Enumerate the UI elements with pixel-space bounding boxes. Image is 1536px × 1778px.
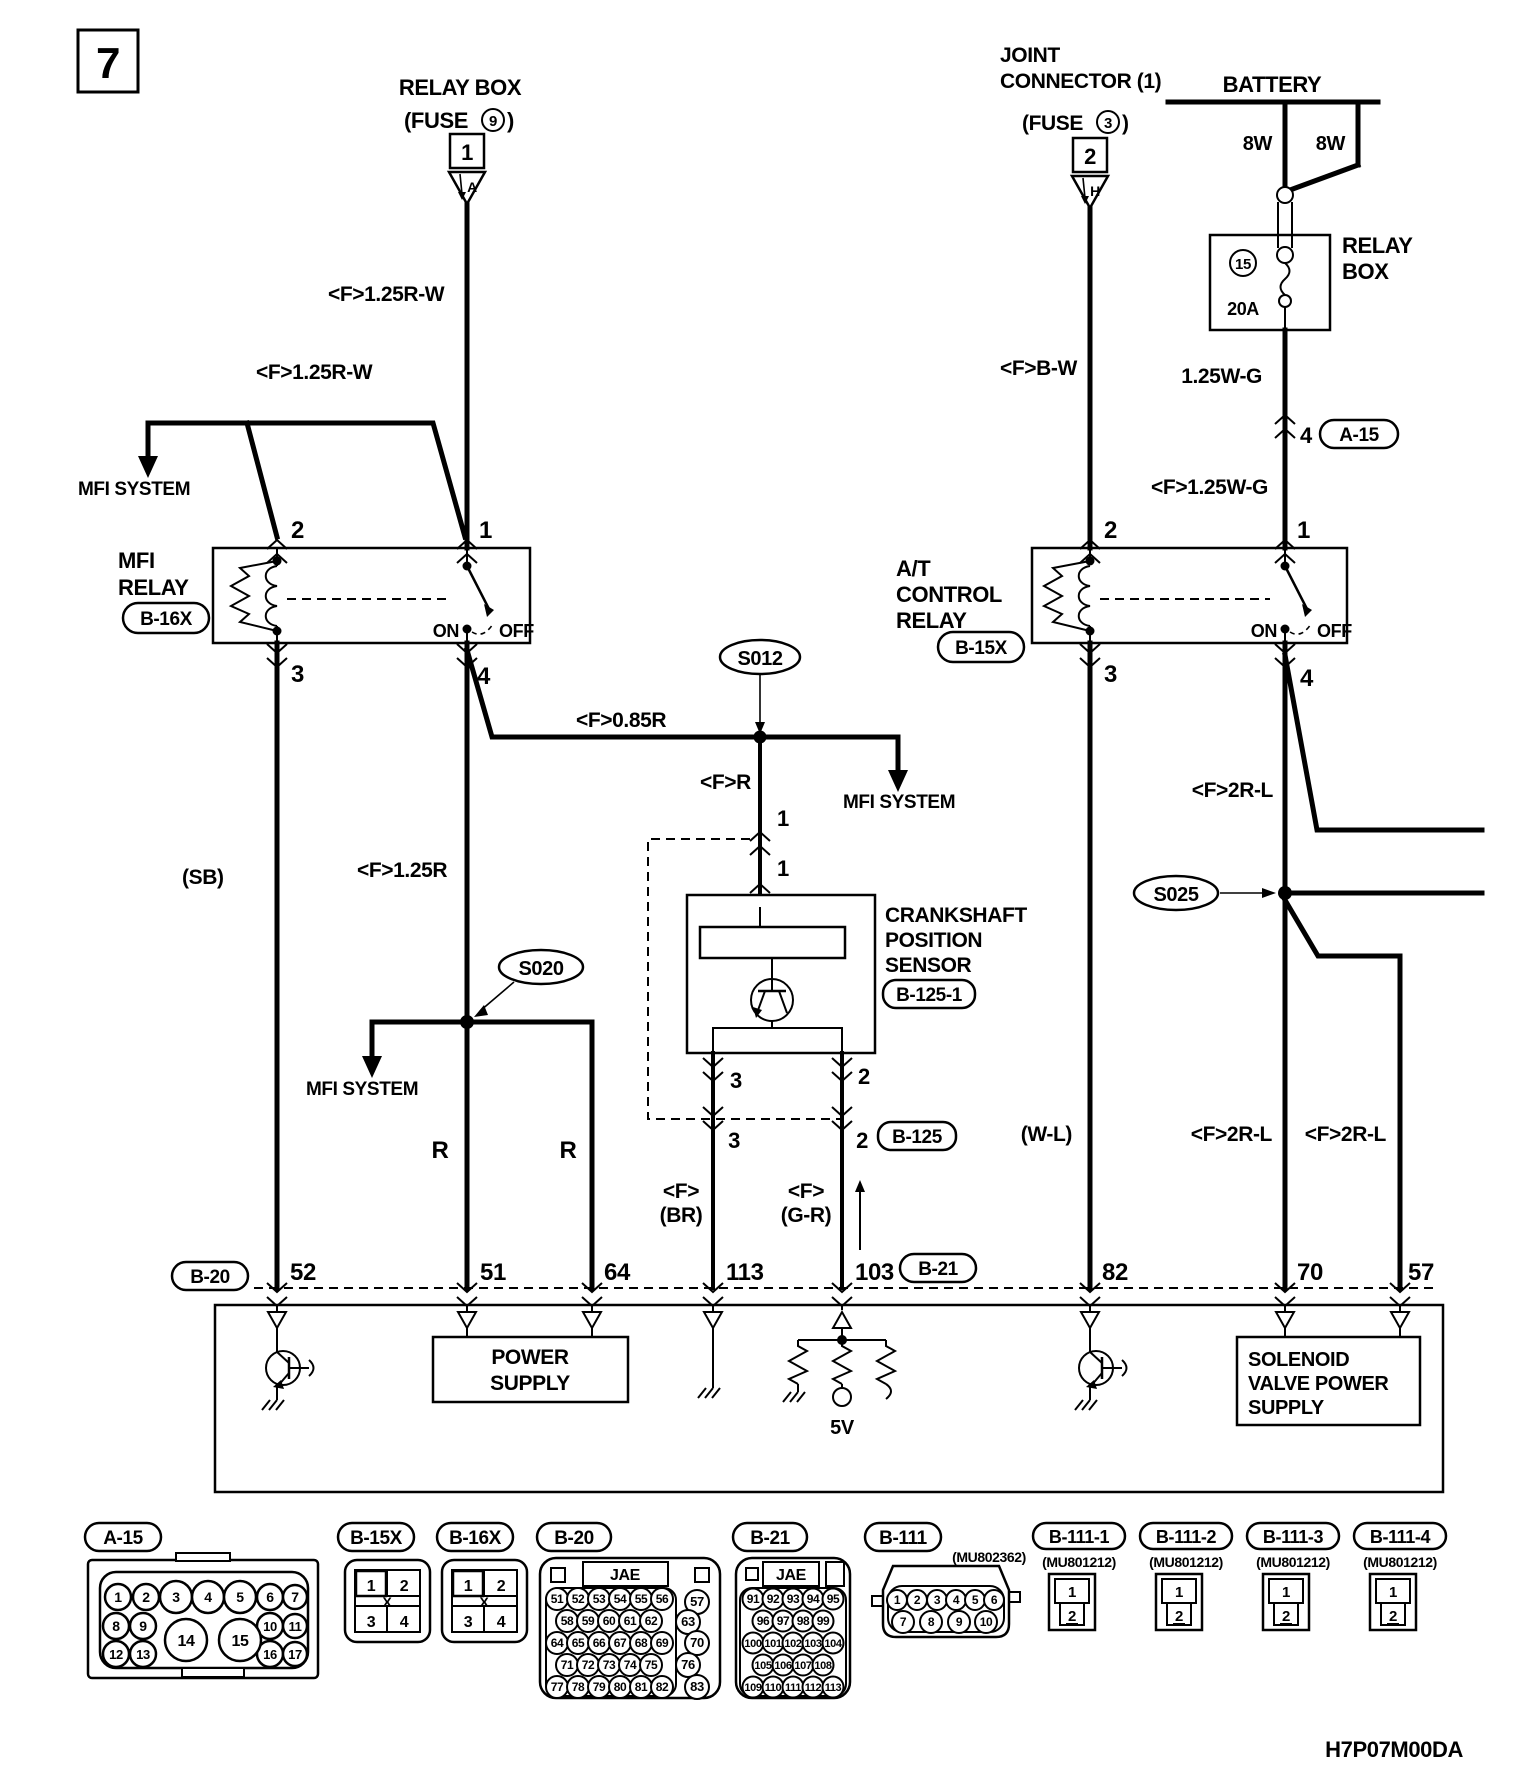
wire-label-125rw-1: <F>1.25R-W	[328, 283, 445, 306]
ecu-pin-64: 64	[604, 1259, 631, 1286]
mfi-relay-on: ON	[433, 621, 459, 641]
a15-pin: 13	[136, 1647, 150, 1662]
wire-label-gr-2: (G-R)	[781, 1204, 831, 1227]
b111-4-pin: 1	[1389, 1584, 1397, 1601]
b111-pin: 8	[928, 1615, 935, 1629]
b20-pin: 78	[572, 1680, 585, 1694]
fuse3-open: (FUSE	[1022, 112, 1083, 135]
b20-pin: 70	[690, 1635, 704, 1650]
a15-pin: 2	[142, 1589, 150, 1605]
a15-pin: 3	[172, 1589, 180, 1605]
connector-view-b111: B-111 (MU802362) 1 2 3 4 5 6 7 8 9 10	[865, 1523, 1026, 1637]
b21-pin: 107	[794, 1660, 811, 1672]
b20-pin: 79	[593, 1680, 606, 1694]
triangle-letter-h: H	[1090, 183, 1100, 199]
splice-s025: S025	[1153, 884, 1198, 906]
b111-label: B-111	[879, 1528, 927, 1549]
solenoid-l2: VALVE POWER	[1248, 1373, 1389, 1395]
ecu-pin-51: 51	[480, 1259, 506, 1286]
wire-label-wg1: 1.25W-G	[1181, 365, 1262, 388]
b20-pin: 75	[645, 1658, 658, 1672]
ecu-driver-transistor-52	[262, 1328, 314, 1410]
at-relay-on: ON	[1251, 621, 1277, 641]
ecu: B-20 B-21 52 51 64 113 103 82 70 57	[172, 1254, 1443, 1492]
b21-pin: 104	[824, 1638, 842, 1650]
b111-1-pin: 2	[1068, 1608, 1076, 1625]
wire-label-r-a: R	[432, 1137, 449, 1164]
b21-pin: 97	[777, 1614, 790, 1628]
b21-pin: 109	[744, 1682, 761, 1694]
b20-pin: 74	[624, 1658, 637, 1672]
b21-pin: 93	[787, 1592, 800, 1606]
ecu-conn-b21: B-21	[918, 1259, 958, 1280]
b20-pin: 55	[635, 1592, 648, 1606]
b111-4-label: B-111-4	[1370, 1527, 1431, 1547]
a15-pin: 12	[109, 1647, 123, 1662]
b20-pin: 64	[551, 1636, 564, 1650]
connector-view-b111-2: B-111-2 (MU801212) 1 2	[1140, 1523, 1232, 1630]
b125-pin2: 2	[856, 1128, 868, 1153]
a15-pin: 6	[266, 1589, 274, 1605]
figure-number-box: 7	[78, 30, 138, 92]
ecu-pin-52: 52	[290, 1259, 316, 1286]
battery-8w-left: 8W	[1243, 133, 1273, 155]
at-relay-output-wiring: (W-L) <F>2R-L S025 <F>2R-L <F>2R-L	[1021, 643, 1482, 1288]
b21-pin: 96	[757, 1614, 770, 1628]
a15-label: A-15	[103, 1528, 143, 1549]
b21-pin: 108	[814, 1660, 831, 1672]
arrow-to-mfi-system-2	[888, 770, 908, 792]
wire-label-gr-1: <F>	[788, 1180, 824, 1203]
b111-3-part: (MU801212)	[1256, 1554, 1330, 1570]
b20-pin: 58	[561, 1614, 574, 1628]
a15-pin: 11	[289, 1619, 302, 1634]
b21-pin: 111	[785, 1682, 801, 1694]
b20-pin: 61	[624, 1614, 637, 1628]
ecu-driver-transistor-82	[1075, 1328, 1127, 1410]
connector-view-b16x: B-16X X 1 2 3 4	[437, 1523, 527, 1642]
wire-label-wl: (W-L)	[1021, 1123, 1072, 1146]
b20-pin: 80	[614, 1680, 627, 1694]
ecu-power-supply: POWER SUPPLY	[433, 1328, 628, 1402]
sensor-conn-pin1b: 1	[777, 856, 789, 881]
b15x-pin: 2	[400, 1578, 409, 1595]
connector2-number: 2	[1084, 144, 1096, 169]
a15-pin: 15	[232, 1633, 249, 1650]
crankshaft-position-sensor: <F>R 1 1 CRANKSHAFT POSITION SENSOR B-12…	[648, 737, 1027, 1288]
figure-number: 7	[96, 39, 120, 88]
b21-maker: JAE	[776, 1567, 807, 1584]
a15-inline-code: A-15	[1339, 425, 1379, 446]
relay-box-l2: BOX	[1342, 259, 1389, 284]
b111-3-pin: 2	[1282, 1608, 1290, 1625]
joint-l2: CONNECTOR (1)	[1000, 70, 1161, 93]
at-relay-name-1: A/T	[896, 556, 931, 581]
sensor-name-3: SENSOR	[885, 954, 972, 977]
a15-pin: 16	[263, 1647, 277, 1662]
b15x-pin: 4	[400, 1614, 409, 1631]
ecu-pin-82: 82	[1102, 1259, 1128, 1286]
connector-view-b20: B-20 JAE 51 52 53 54 55 56 58 59 60 61 6…	[537, 1523, 720, 1699]
signal-direction-arrow	[855, 1180, 865, 1192]
splice-s012: S012	[737, 648, 782, 670]
doc-code: H7P07M00DA	[1325, 1737, 1463, 1762]
b111-2-pin: 2	[1175, 1608, 1183, 1625]
b16x-label: B-16X	[449, 1528, 502, 1549]
ecu-pin-70: 70	[1297, 1259, 1323, 1286]
fuse15-number: 15	[1235, 256, 1251, 273]
b111-2-part: (MU801212)	[1149, 1554, 1223, 1570]
b21-pin: 92	[767, 1592, 780, 1606]
fuse9-close: )	[507, 108, 514, 133]
b20-pin: 53	[593, 1592, 606, 1606]
b20-pin: 71	[561, 1658, 574, 1672]
b20-pin: 56	[656, 1592, 669, 1606]
b111-pin: 4	[953, 1593, 960, 1607]
b20-pin: 63	[681, 1614, 695, 1629]
arrow-to-mfi-system-3	[362, 1056, 382, 1078]
at-relay-pin3: 3	[1104, 661, 1117, 688]
relay-box-l1: RELAY	[1342, 233, 1413, 258]
b111-4-pin: 2	[1389, 1608, 1397, 1625]
fuse15-rating: 20A	[1227, 299, 1259, 319]
at-relay-pin4: 4	[1300, 665, 1314, 692]
b20-maker: JAE	[610, 1567, 641, 1584]
b111-3-label: B-111-3	[1263, 1527, 1324, 1547]
battery-8w-right: 8W	[1316, 133, 1346, 155]
b111-pin: 1	[894, 1593, 901, 1607]
fuse3-number: 3	[1104, 115, 1112, 132]
connector-view-b111-4: B-111-4 (MU801212) 1 2	[1354, 1523, 1446, 1630]
mfi-relay-name-1: MFI	[118, 548, 155, 573]
fuse9-open: (FUSE	[404, 108, 468, 133]
sensor-pin3: 3	[730, 1068, 742, 1093]
b111-pin: 9	[956, 1615, 963, 1629]
b16x-key: X	[480, 1594, 490, 1610]
b21-pin: 112	[805, 1682, 822, 1694]
sensor-name-2: POSITION	[885, 929, 982, 952]
mfi-relay-pin3: 3	[291, 661, 304, 688]
b111-pin: 3	[934, 1593, 941, 1607]
ecu-5v-label: 5V	[830, 1417, 855, 1439]
b111-3-pin: 1	[1282, 1584, 1290, 1601]
ecu-pin-103: 103	[855, 1259, 894, 1286]
wire-label-wg2: <F>1.25W-G	[1151, 476, 1268, 499]
b111-4-part: (MU801212)	[1363, 1554, 1437, 1570]
b21-pin: 102	[784, 1638, 801, 1650]
wire-label-r-b: R	[560, 1137, 577, 1164]
b111-1-part: (MU801212)	[1042, 1554, 1116, 1570]
b21-pin: 113	[825, 1682, 842, 1694]
wire-label-bw: <F>B-W	[1000, 357, 1078, 380]
connector-view-b111-3: B-111-3 (MU801212) 1 2	[1247, 1523, 1339, 1630]
mfi-relay-pin2: 2	[291, 517, 304, 544]
b15x-key: X	[383, 1594, 393, 1610]
wire-label-125r: <F>1.25R	[357, 859, 447, 882]
b21-pin: 91	[747, 1592, 760, 1606]
b20-pin: 83	[690, 1679, 704, 1694]
splice-s020: S020	[518, 958, 563, 980]
fuse9-number: 9	[489, 113, 497, 130]
b111-2-label: B-111-2	[1156, 1527, 1217, 1547]
battery-title: BATTERY	[1223, 72, 1322, 97]
ecu-entry-symbols	[268, 1305, 1409, 1328]
b111-pin: 2	[914, 1593, 921, 1607]
b111-1-label: B-111-1	[1049, 1527, 1110, 1547]
b21-pin: 103	[804, 1638, 821, 1650]
wire-label-rl2: <F>2R-L	[1191, 1123, 1273, 1146]
wire-label-sb: (SB)	[182, 866, 224, 889]
b20-pin: 51	[551, 1592, 564, 1606]
b20-pin: 66	[593, 1636, 606, 1650]
b20-pin: 82	[656, 1680, 669, 1694]
b20-pin: 76	[681, 1657, 695, 1672]
relay-box-title: RELAY BOX	[399, 75, 522, 100]
b111-pin: 5	[972, 1593, 979, 1607]
b125-code: B-125	[892, 1127, 943, 1148]
b20-pin: 59	[582, 1614, 595, 1628]
b111-2-pin: 1	[1175, 1584, 1183, 1601]
wire-label-125rw-2: <F>1.25R-W	[256, 361, 373, 384]
sensor-code: B-125-1	[896, 985, 963, 1006]
wire-label-fr: <F>R	[700, 771, 751, 794]
a15-pin: 9	[139, 1618, 147, 1634]
b21-pin: 94	[807, 1592, 820, 1606]
connector1-number: 1	[461, 140, 473, 165]
b20-pin: 81	[635, 1680, 648, 1694]
b20-pin: 77	[551, 1680, 564, 1694]
joint-connector-1: JOINT CONNECTOR (1) (FUSE 3 ) 2 H <F>B-W	[1000, 44, 1161, 548]
a15-pin: 4	[204, 1589, 212, 1605]
mfi-relay-name-2: RELAY	[118, 575, 189, 600]
a15-pin: 1	[114, 1589, 122, 1605]
at-relay-pin2: 2	[1104, 517, 1117, 544]
joint-l1: JOINT	[1000, 44, 1060, 67]
battery-and-relay-box: BATTERY 8W 8W 15 20A RELAY BOX 1.25W-G 4…	[1151, 72, 1413, 548]
b21-pin: 106	[774, 1660, 791, 1672]
at-relay-name-2: CONTROL	[896, 582, 1002, 607]
sensor-name-1: CRANKSHAFT	[885, 904, 1027, 927]
b16x-pin: 4	[497, 1614, 506, 1631]
ecu-pin-113: 113	[726, 1259, 764, 1286]
mfi-relay-pin1: 1	[479, 517, 492, 544]
wire-label-085r: <F>0.85R	[576, 709, 666, 732]
solenoid-l3: SUPPLY	[1248, 1397, 1325, 1419]
b20-pin: 57	[690, 1594, 704, 1609]
wire-label-rl1: <F>2R-L	[1192, 779, 1274, 802]
wire-label-br-2: (BR)	[660, 1204, 703, 1227]
b111-1-pin: 1	[1068, 1584, 1076, 1601]
b16x-pin: 1	[464, 1578, 473, 1595]
b111-part: (MU802362)	[952, 1549, 1026, 1565]
arrow-to-mfi-system-1	[138, 456, 158, 478]
connector-view-a15: A-15 1 2 3 4 5 6 7 8 9 10 11 12 13 16 17…	[85, 1523, 318, 1678]
b111-pin: 7	[900, 1615, 907, 1629]
b111-pin: 10	[980, 1615, 993, 1629]
at-relay-code: B-15X	[955, 638, 1008, 659]
b20-pin: 69	[656, 1636, 669, 1650]
b20-label: B-20	[554, 1528, 594, 1549]
sensor-conn-pin1a: 1	[777, 806, 789, 831]
mfi-relay-off: OFF	[499, 621, 534, 641]
b21-pin: 99	[817, 1614, 830, 1628]
ecu-pin-57: 57	[1408, 1259, 1434, 1286]
b21-pin: 100	[744, 1638, 761, 1650]
b21-pin: 98	[797, 1614, 810, 1628]
b21-pin: 105	[754, 1660, 771, 1672]
a15-pin: 8	[112, 1618, 120, 1634]
at-relay-name-3: RELAY	[896, 608, 967, 633]
b20-pin: 68	[635, 1636, 648, 1650]
b15x-pin: 1	[367, 1578, 376, 1595]
connector-views: A-15 1 2 3 4 5 6 7 8 9 10 11 12 13 16 17…	[85, 1523, 1446, 1699]
ecu-pin-chevrons	[267, 1283, 1410, 1306]
connector-view-b15x: B-15X X 1 2 3 4	[338, 1523, 430, 1642]
sensor-pin2: 2	[858, 1064, 870, 1089]
ecu-ground-113	[698, 1328, 720, 1398]
b20-pin: 54	[614, 1592, 627, 1606]
b21-pin: 101	[764, 1638, 781, 1650]
b20-pin: 73	[603, 1658, 616, 1672]
b20-pin: 67	[614, 1636, 627, 1650]
at-relay-off: OFF	[1317, 621, 1352, 641]
a15-inline-pin: 4	[1300, 423, 1313, 448]
relay-box-fuse9: RELAY BOX (FUSE 9 ) 1 A	[399, 75, 522, 204]
b16x-pin: 3	[464, 1614, 473, 1631]
b20-pin: 62	[645, 1614, 658, 1628]
triangle-letter-a: A	[467, 179, 477, 195]
wiring-diagram-page: 7 RELAY BOX (FUSE 9 ) 1 A <F>1.25R-W <F>…	[0, 0, 1536, 1778]
mfi-relay-code: B-16X	[140, 609, 193, 630]
a15-pin: 5	[236, 1589, 244, 1605]
mfi-system-label-3: MFI SYSTEM	[306, 1079, 418, 1100]
at-relay-pin1: 1	[1297, 517, 1310, 544]
b16x-pin: 2	[497, 1578, 506, 1595]
wire-label-br-1: <F>	[663, 1180, 699, 1203]
connector-view-b21: B-21 JAE 91 92 93 94 95 96 97 98 99 100 …	[733, 1523, 850, 1698]
power-supply-l1: POWER	[491, 1346, 569, 1369]
ecu-103-network: 5V	[783, 1328, 895, 1439]
wire-label-rl3: <F>2R-L	[1305, 1123, 1387, 1146]
b15x-label: B-15X	[350, 1528, 403, 1549]
mfi-supply-wiring: <F>1.25R-W <F>1.25R-W MFI SYSTEM	[78, 204, 467, 548]
mfi-system-label-1: MFI SYSTEM	[78, 479, 190, 500]
a15-pin: 17	[288, 1647, 302, 1662]
b21-label: B-21	[750, 1528, 790, 1549]
b111-pin: 6	[991, 1593, 998, 1607]
connector-view-b111-1: B-111-1 (MU801212) 1 2	[1033, 1523, 1125, 1630]
a15-pin: 10	[263, 1619, 277, 1634]
b20-pin: 72	[582, 1658, 595, 1672]
a15-pin: 7	[291, 1589, 299, 1605]
fuse3-close: )	[1122, 112, 1129, 135]
b125-pin3: 3	[728, 1128, 740, 1153]
b20-pin: 52	[572, 1592, 585, 1606]
a15-pin: 14	[178, 1633, 195, 1650]
solenoid-l1: SOLENOID	[1248, 1349, 1349, 1371]
ecu-conn-b20: B-20	[190, 1267, 230, 1288]
b21-pin: 110	[765, 1682, 782, 1694]
mfi-system-label-2: MFI SYSTEM	[843, 792, 955, 813]
b20-pin: 65	[572, 1636, 585, 1650]
ecu-solenoid-supply: SOLENOID VALVE POWER SUPPLY	[1237, 1328, 1420, 1425]
b15x-pin: 3	[367, 1614, 376, 1631]
b21-pin: 95	[827, 1592, 840, 1606]
power-supply-l2: SUPPLY	[490, 1372, 570, 1395]
b20-pin: 60	[603, 1614, 616, 1628]
